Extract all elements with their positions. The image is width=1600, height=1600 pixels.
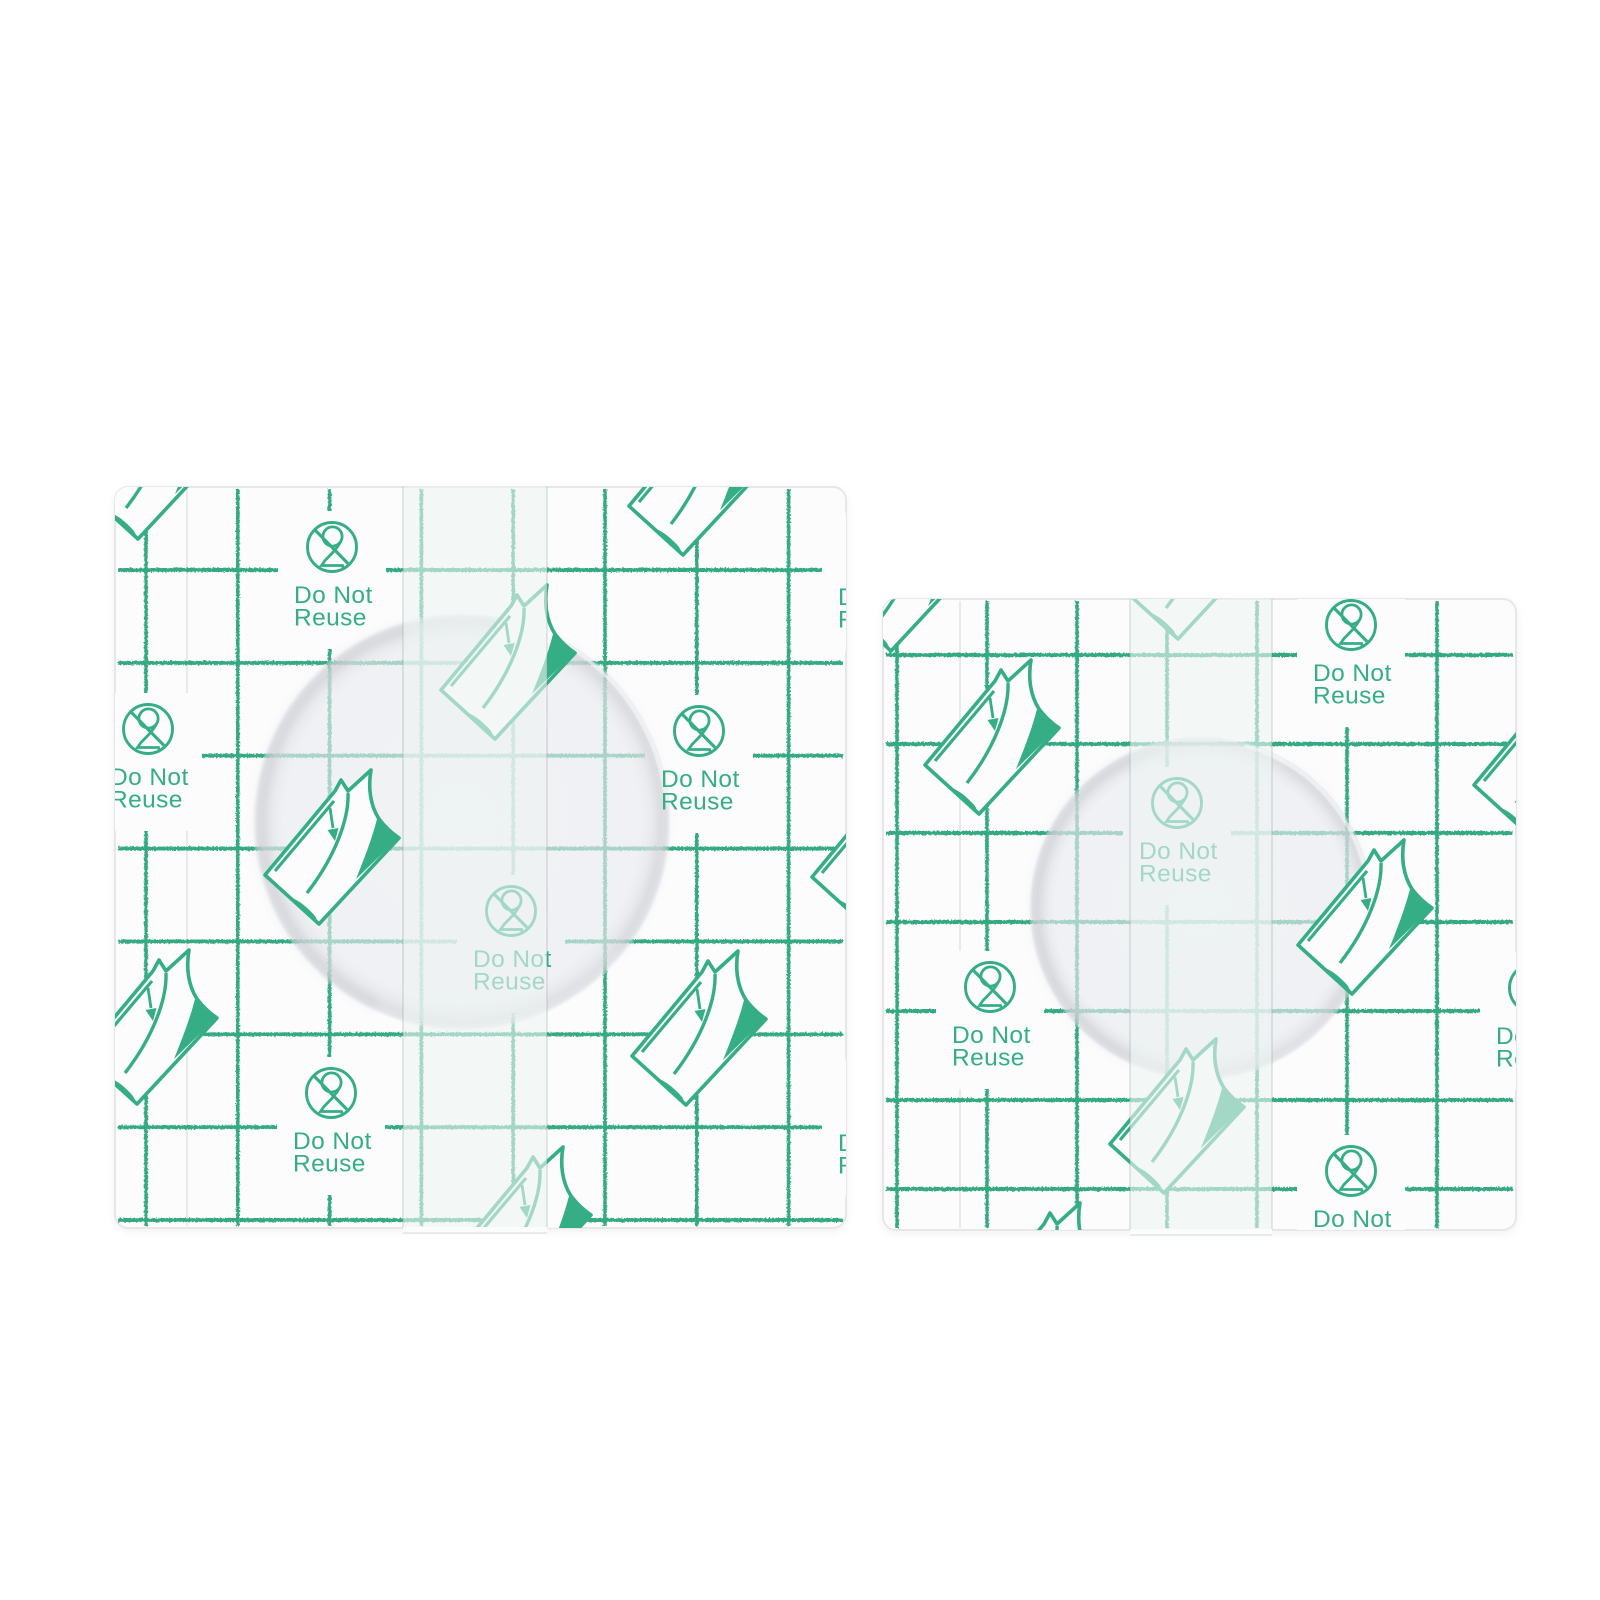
svg-text:Reuse: Reuse (952, 1045, 1025, 1072)
svg-text:Reuse: Reuse (110, 787, 183, 814)
svg-text:Reuse: Reuse (293, 1151, 366, 1178)
svg-text:Reuse: Reuse (1313, 683, 1386, 710)
svg-text:Reuse: Reuse (661, 789, 734, 816)
svg-text:Reuse: Reuse (294, 605, 367, 632)
